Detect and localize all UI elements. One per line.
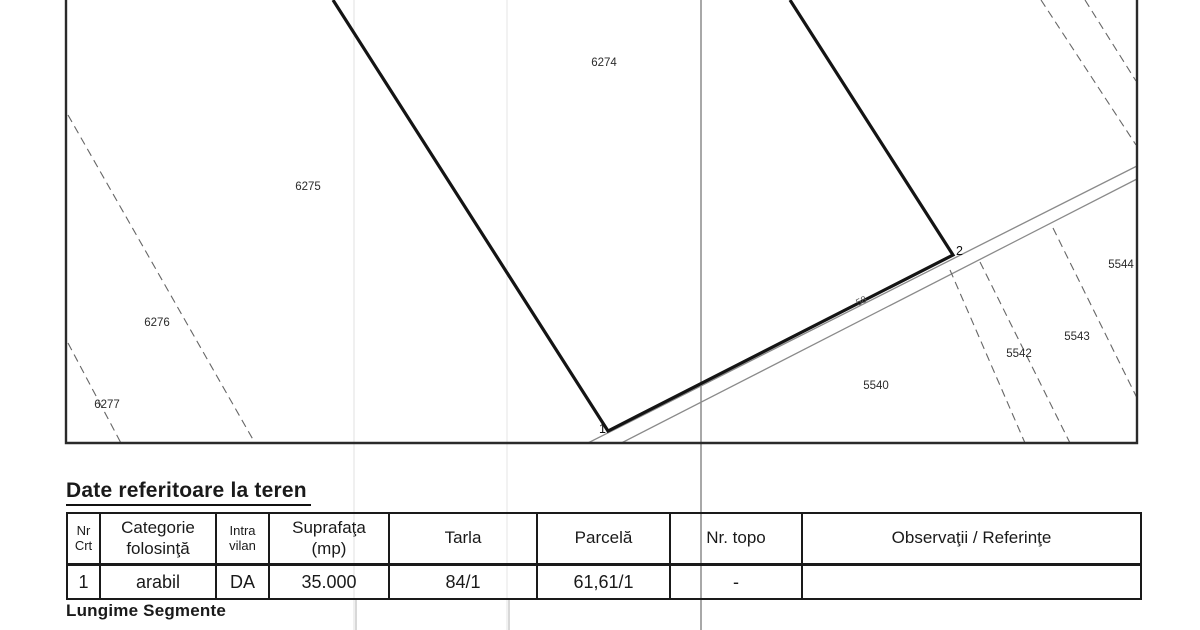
cell-tarla: 84/1: [389, 565, 537, 600]
boundary-6276-6277: [68, 343, 122, 445]
header-nr-crt: Nr Crt: [67, 513, 100, 565]
parcel-label-6275: 6275: [295, 181, 321, 193]
cadastral-plan-page: 6274 6275 6276 6277 5540 5542 5543 5544 …: [0, 0, 1200, 630]
cell-categorie: arabil: [100, 565, 216, 600]
cell-intravilan: DA: [216, 565, 269, 600]
parcel-6274-boundary: [333, 0, 953, 431]
header-intravilan: Intra vilan: [216, 513, 269, 565]
parcel-label-6276: 6276: [144, 317, 170, 329]
header-categorie-folosinta: Categorie folosinţă: [100, 513, 216, 565]
teren-table-data-row: 1 arabil DA 35.000 84/1 61,61/1 -: [67, 565, 1141, 600]
cell-nr-crt: 1: [67, 565, 100, 600]
header-suprafata: Suprafaţa (mp): [269, 513, 389, 565]
cell-suprafata: 35.000: [269, 565, 389, 600]
segment-length-label: 58: [854, 294, 868, 309]
boundary-6275-6276: [68, 115, 255, 443]
cell-nr-topo: -: [670, 565, 802, 600]
parcel-label-5540: 5540: [863, 380, 889, 392]
vertex-label-2: 2: [956, 244, 963, 258]
header-tarla: Tarla: [389, 513, 537, 565]
teren-table: Nr Crt Categorie folosinţă Intra vilan S…: [66, 512, 1142, 600]
boundary-topright-outer: [1041, 0, 1136, 145]
vertex-label-1: 1: [599, 422, 606, 436]
boundary-topright-inner: [1085, 0, 1136, 81]
road-edge-southeast: [594, 179, 1137, 457]
parcel-label-6274: 6274: [591, 57, 617, 69]
parcel-label-5542: 5542: [1006, 348, 1032, 360]
cell-parcela: 61,61/1: [537, 565, 670, 600]
segments-heading: Lungime Segmente: [66, 601, 226, 621]
parcel-label-5544: 5544: [1108, 259, 1134, 271]
teren-table-header-row: Nr Crt Categorie folosinţă Intra vilan S…: [67, 513, 1141, 565]
header-observatii: Observaţii / Referinţe: [802, 513, 1141, 565]
header-parcela: Parcelă: [537, 513, 670, 565]
cell-observatii: [802, 565, 1141, 600]
parcel-label-5543: 5543: [1064, 331, 1090, 343]
parcel-label-6277: 6277: [94, 399, 120, 411]
segment-table-column-stubs: [356, 599, 509, 630]
boundary-5543-5544: [1053, 228, 1137, 398]
header-nr-topo: Nr. topo: [670, 513, 802, 565]
teren-table-title: Date referitoare la teren: [66, 479, 311, 506]
